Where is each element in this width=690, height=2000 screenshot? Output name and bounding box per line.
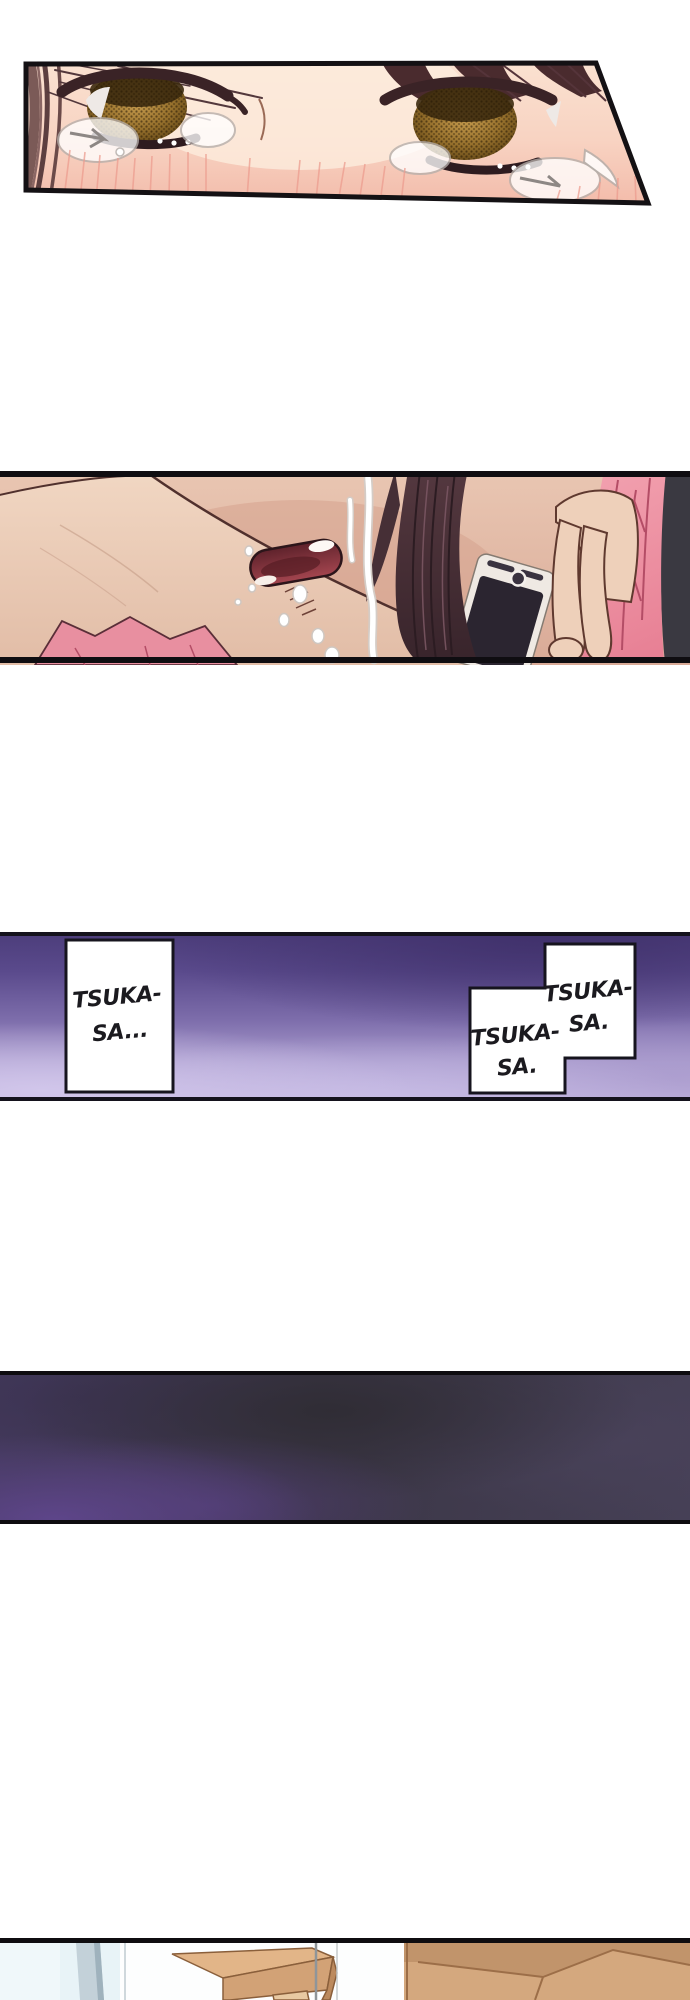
speech-boxes: TSUKA- SA... TSUKA- SA. TSUKA- SA. xyxy=(0,936,690,1097)
speech-text: SA. xyxy=(496,1053,538,1081)
speech-box-left: TSUKA- SA... xyxy=(66,940,173,1092)
speech-box-right: TSUKA- SA. TSUKA- SA. xyxy=(470,944,636,1093)
panel-1-eyes xyxy=(0,0,690,215)
speech-text: SA. xyxy=(568,1009,610,1037)
panel-2-border-bottom xyxy=(0,657,690,663)
panel-4-dark-smoke xyxy=(0,1371,690,1524)
manga-page: TSUKA- SA... TSUKA- SA. TSUKA- SA. xyxy=(0,0,690,2000)
panel-2-border-top xyxy=(0,471,690,477)
speech-text: SA... xyxy=(91,1018,149,1048)
panel-3-purple: TSUKA- SA... TSUKA- SA. TSUKA- SA. xyxy=(0,932,690,1101)
wooden-shelf xyxy=(400,1943,690,2000)
panel-2-crying-phone xyxy=(0,471,690,665)
cardboard-box xyxy=(172,1948,337,2000)
panel-5-room xyxy=(0,1938,690,2000)
